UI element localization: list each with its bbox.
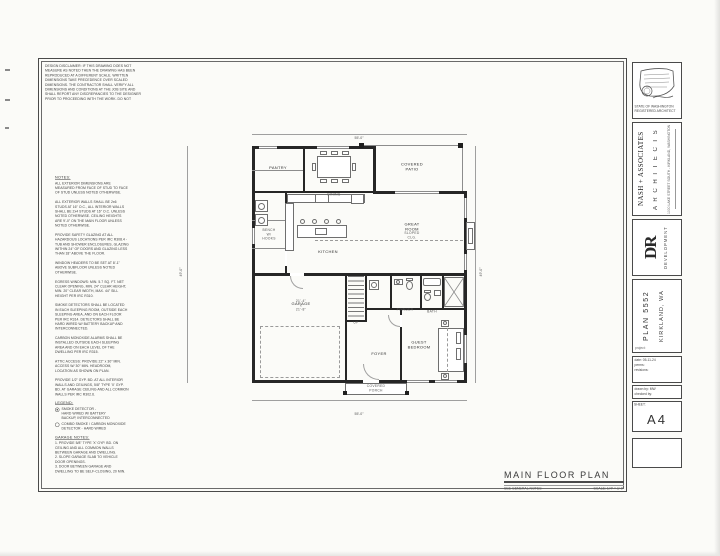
legend-item: COMBO SMOKE / CARBON MONOXIDE DETECTOR -… bbox=[55, 422, 129, 431]
dimension-line bbox=[475, 146, 476, 383]
stool bbox=[300, 219, 305, 224]
legend-label: COMBO SMOKE / CARBON MONOXIDE DETECTOR -… bbox=[62, 422, 126, 431]
patio-slider-window bbox=[395, 191, 439, 194]
garage-dashed-outline bbox=[260, 326, 340, 378]
door-opening bbox=[400, 315, 402, 327]
developer-box: DR DEVELOPMENT bbox=[632, 219, 682, 276]
stool bbox=[324, 219, 329, 224]
kitchen-counter bbox=[285, 203, 294, 251]
window bbox=[407, 380, 429, 383]
wall bbox=[252, 380, 348, 383]
divider bbox=[675, 129, 676, 209]
washington-stamp-icon bbox=[633, 64, 681, 104]
kitchen-label: KITCHEN bbox=[318, 249, 338, 254]
checked-by-line: checked by: bbox=[635, 392, 683, 397]
garage-sublabel: 21'-4" x 21'-8" bbox=[296, 300, 306, 313]
project-box: PLAN 5552 KIRKLAND, WA project: bbox=[632, 279, 682, 353]
window bbox=[259, 146, 277, 149]
lamp bbox=[443, 374, 447, 378]
scan-mark bbox=[5, 69, 10, 71]
bedroom-label: GUEST BEDROOM bbox=[408, 340, 431, 350]
firm-title: A R C H I T E C T S bbox=[653, 123, 659, 215]
scan-edge-bottom bbox=[0, 551, 720, 556]
window bbox=[252, 228, 255, 244]
sheet-label: SHEET: bbox=[633, 402, 683, 408]
patio-edge bbox=[361, 145, 463, 146]
porch-post bbox=[343, 391, 347, 395]
wall bbox=[365, 273, 367, 320]
wall bbox=[373, 146, 376, 194]
porch-label: COVERED PORCH bbox=[367, 385, 385, 394]
chair bbox=[331, 151, 338, 155]
title-scale: SCALE: 1/4" = 1'-0" bbox=[594, 487, 624, 491]
chair bbox=[331, 179, 338, 183]
garage-notes-body: 1. PROVIDE 5/8" TYPE 'X' GYP. BD. ON CEI… bbox=[55, 441, 129, 474]
title-underline bbox=[504, 483, 624, 486]
co-detector-icon bbox=[55, 422, 60, 427]
great-room-label: GREAT ROOM bbox=[405, 222, 420, 232]
lamp bbox=[443, 321, 447, 325]
notes-heading: NOTES: bbox=[55, 175, 129, 180]
island-sink bbox=[315, 228, 327, 235]
pillow bbox=[456, 348, 461, 360]
fireplace-insert bbox=[468, 228, 473, 244]
powder-label: POWDER bbox=[397, 308, 414, 312]
smoke-detector-icon bbox=[55, 407, 60, 412]
dryer-door bbox=[258, 217, 265, 224]
toilet bbox=[406, 281, 413, 290]
stairs-label: UP bbox=[353, 321, 358, 325]
firm-name: NASH + ASSOCIATES bbox=[637, 123, 645, 215]
bath-sink bbox=[434, 290, 441, 296]
linen-closet-x bbox=[444, 277, 464, 307]
credits-box: drawn by: MW checked by: bbox=[632, 385, 682, 399]
legend-label: SMOKE DETECTOR - HARD WIRED W/ BATTERY B… bbox=[62, 407, 110, 421]
firm-address: 1000 LAKE STREET SOUTH - KIRKLAND, WASHI… bbox=[667, 123, 671, 215]
chair bbox=[342, 151, 349, 155]
chair bbox=[352, 163, 356, 171]
wall bbox=[345, 273, 347, 380]
project-label: project: bbox=[635, 347, 645, 351]
dimension-label: 49'-0" bbox=[179, 268, 183, 277]
scanned-sheet: { "colors": {"paper": "#fbfbf8", "ink": … bbox=[0, 0, 720, 556]
disclaimer-text: DESIGN DISCLAIMER: IF THIS DRAWING DOES … bbox=[45, 64, 142, 100]
dimension-label: 55'-0" bbox=[355, 412, 364, 416]
window bbox=[317, 146, 349, 149]
notes-body: ALL EXTERIOR DIMENSIONS ARE MEASURED FRO… bbox=[55, 181, 129, 397]
title-note-left: SEE GENERAL NOTES bbox=[504, 487, 542, 491]
drawing-title-block: MAIN FLOOR PLAN SEE GENERAL NOTES SCALE:… bbox=[504, 470, 624, 494]
garage-door-swing bbox=[290, 276, 303, 289]
wall bbox=[303, 146, 305, 191]
firm-box: NASH + ASSOCIATES A R C H I T E C T S 10… bbox=[632, 122, 682, 216]
bath-label: BATH bbox=[427, 310, 437, 314]
dining-table bbox=[317, 156, 351, 178]
bedroom-door-swing bbox=[388, 315, 400, 327]
patio-post bbox=[359, 143, 364, 148]
dimension-label: 55'-0" bbox=[355, 136, 364, 140]
dimension-line bbox=[187, 146, 188, 383]
dining-label: DINING bbox=[327, 193, 340, 197]
window bbox=[464, 335, 467, 363]
chair bbox=[320, 179, 327, 183]
sheet-number-box: SHEET: A4 bbox=[632, 401, 682, 432]
wall bbox=[252, 248, 285, 249]
chair bbox=[320, 151, 327, 155]
toilet bbox=[424, 293, 431, 301]
project-city: KIRKLAND, WA bbox=[659, 280, 665, 352]
wall bbox=[390, 276, 392, 308]
blanket-line bbox=[447, 328, 448, 372]
front-door-swing bbox=[363, 364, 379, 380]
developer-sublabel: DEVELOPMENT bbox=[663, 220, 668, 275]
patio-edge bbox=[462, 145, 463, 191]
wall bbox=[365, 308, 466, 310]
bench-label: BENCH W/ HOOKS bbox=[262, 229, 275, 242]
door-opening bbox=[285, 250, 287, 266]
stamp-text: REGISTERED ARCHITECT bbox=[635, 109, 683, 113]
foyer-label: FOYER bbox=[371, 351, 386, 356]
bathtub bbox=[423, 278, 441, 286]
window bbox=[435, 380, 457, 383]
dimension-label: 49'-0" bbox=[479, 268, 483, 277]
sheet-number: A4 bbox=[633, 412, 681, 427]
project-name: PLAN 5552 bbox=[643, 280, 650, 352]
drawing-title: MAIN FLOOR PLAN bbox=[504, 470, 624, 483]
general-notes-column: NOTES: ALL EXTERIOR DIMENSIONS ARE MEASU… bbox=[55, 168, 129, 474]
scan-mark bbox=[5, 99, 10, 101]
legend-heading: LEGEND: bbox=[55, 400, 129, 405]
wall bbox=[252, 191, 373, 193]
pillow bbox=[456, 332, 461, 344]
patio-post bbox=[458, 143, 463, 148]
chair bbox=[312, 163, 316, 171]
porch-post bbox=[405, 391, 409, 395]
scan-edge-right bbox=[714, 0, 720, 556]
floor-plan: PANTRY DINING COVERED PATIO GREAT ROOM S… bbox=[195, 130, 487, 420]
patio-label: COVERED PATIO bbox=[401, 162, 423, 172]
architect-stamp-box: STATE OF WASHINGTON REGISTERED ARCHITECT bbox=[632, 62, 682, 119]
wall bbox=[252, 146, 255, 383]
spare-box bbox=[632, 438, 682, 468]
developer-logo: DR bbox=[641, 220, 661, 275]
sink-bowl bbox=[396, 280, 400, 284]
great-room-sublabel: SLOPED CLG. bbox=[404, 232, 419, 241]
window bbox=[464, 198, 467, 218]
dimension-line bbox=[252, 400, 467, 401]
revisions-line: revisions: bbox=[635, 368, 683, 373]
door-opening bbox=[363, 380, 379, 383]
washer-door bbox=[258, 203, 265, 210]
disclaimer-block: DESIGN DISCLAIMER: IF THIS DRAWING DOES … bbox=[45, 64, 142, 100]
dimension-line bbox=[252, 134, 467, 135]
chair bbox=[342, 179, 349, 183]
garage-notes-heading: GARAGE NOTES: bbox=[55, 435, 129, 440]
ceiling-ridge-line bbox=[315, 240, 463, 241]
scan-mark bbox=[5, 127, 9, 129]
stool bbox=[312, 219, 317, 224]
refrigerator bbox=[351, 194, 364, 204]
stool bbox=[336, 219, 341, 224]
pantry-label: PANTRY bbox=[269, 165, 287, 170]
legend-item: SMOKE DETECTOR - HARD WIRED W/ BATTERY B… bbox=[55, 407, 129, 421]
window bbox=[464, 254, 467, 270]
appliance-door bbox=[371, 282, 377, 288]
stairs bbox=[348, 276, 364, 319]
wall bbox=[420, 276, 422, 308]
issue-info-box: date: 05-11-24 perms: revisions: bbox=[632, 356, 682, 383]
